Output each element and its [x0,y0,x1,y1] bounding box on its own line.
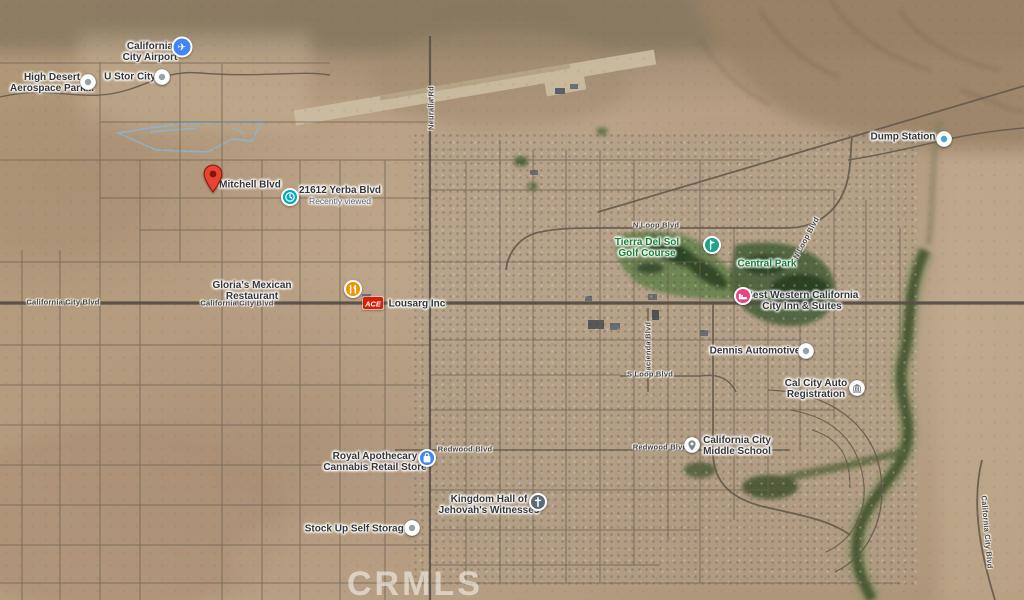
poi-label-royal-apothecary-cannabis[interactable]: Royal Apothecary Cannabis Retail Store [323,451,426,473]
road-label-redwood-blvd-w: Redwood Blvd [438,445,492,454]
road-label-n-loop-blvd-w: N Loop Blvd [633,221,679,230]
poi-label-text-glorias-mexican-restaurant: Gloria's Mexican Restaurant [212,280,291,302]
cannabis-store-marker[interactable] [417,448,437,468]
road-label-california-city-blvd-w: California City Blvd [26,298,99,307]
aerospace-park-marker[interactable] [78,72,98,92]
recently-viewed-marker[interactable] [280,187,300,207]
poi-label-text-dennis-automotive: Dennis Automotive [710,345,801,356]
poi-label-u-stor-city[interactable]: U Stor City [104,71,156,82]
road-label-n-loop-blvd-e: N Loop Blvd [791,215,821,260]
poi-label-yerba-blvd-21612[interactable]: 21612 Yerba BlvdRecently viewed [299,185,381,207]
poi-label-best-western-california-city-inn[interactable]: Best Western California City Inn & Suite… [746,290,859,312]
poi-label-lousarg-inc[interactable]: Lousarg Inc [389,298,446,309]
poi-label-california-city-middle-school[interactable]: California City Middle School [703,435,771,457]
svg-text:ACE: ACE [364,299,382,308]
poi-label-dennis-automotive[interactable]: Dennis Automotive [710,345,801,356]
auto-registration-marker[interactable] [847,378,867,398]
poi-label-text-california-city-airport: California City Airport [123,41,178,63]
road-label-s-loop-blvd: S Loop Blvd [627,370,673,379]
poi-label-text-u-stor-city: U Stor City [104,71,156,82]
poi-label-text-kingdom-hall-jehovahs-witnesses: Kingdom Hall of Jehovah's Witnesses [439,494,540,516]
road-label-hacienda-blvd: Hacienda Blvd [644,322,653,376]
poi-label-text-cal-city-auto-registration: Cal City Auto Registration [785,378,847,400]
road-label-redwood-blvd-e: Redwood Blvd [633,443,687,452]
poi-label-mitchell-blvd[interactable]: Mitchell Blvd [219,179,281,190]
poi-label-text-stock-up-self-storage: Stock Up Self Storage [305,523,409,534]
poi-label-stock-up-self-storage[interactable]: Stock Up Self Storage [305,523,409,534]
poi-sublabel-yerba-blvd-21612: Recently viewed [299,197,381,207]
poi-label-text-dump-station: Dump Station [871,131,936,142]
svg-text:✈: ✈ [178,42,187,54]
poi-label-glorias-mexican-restaurant[interactable]: Gloria's Mexican Restaurant [212,280,291,302]
u-stor-city-marker[interactable] [152,67,172,87]
poi-label-dump-station[interactable]: Dump Station [871,131,936,142]
golf-course-marker[interactable] [702,235,722,255]
subject-property-pin-marker[interactable] [203,164,224,194]
dump-station-marker[interactable] [934,129,954,149]
road-label-california-city-blvd-se: California City Blvd [979,495,994,569]
satellite-map-canvas[interactable]: California City BlvdCalifornia City Blvd… [0,0,1024,600]
poi-label-text-central-park: Central Park [738,258,797,269]
middle-school-marker[interactable] [682,435,702,455]
poi-label-tierra-del-sol-golf-course[interactable]: Tierra Del Sol Golf Course [615,237,679,259]
poi-label-text-lousarg-inc: Lousarg Inc [389,298,446,309]
poi-label-text-best-western-california-city-inn: Best Western California City Inn & Suite… [746,290,859,312]
poi-label-cal-city-auto-registration[interactable]: Cal City Auto Registration [785,378,847,400]
hotel-marker[interactable] [733,286,753,306]
restaurant-marker[interactable] [343,279,363,299]
self-storage-marker[interactable] [402,518,422,538]
dennis-automotive-marker[interactable] [796,341,816,361]
poi-label-central-park[interactable]: Central Park [738,258,797,269]
airport-marker[interactable]: ✈ [171,36,194,59]
poi-label-text-royal-apothecary-cannabis: Royal Apothecary Cannabis Retail Store [323,451,426,473]
crmls-watermark: CRMLS [347,565,483,600]
kingdom-hall-marker[interactable] [528,492,548,512]
poi-label-text-tierra-del-sol-golf-course: Tierra Del Sol Golf Course [615,237,679,259]
map-overlay: California City BlvdCalifornia City Blvd… [0,0,1024,600]
poi-label-california-city-airport[interactable]: California City Airport [123,41,178,63]
poi-label-text-mitchell-blvd: Mitchell Blvd [219,179,281,190]
poi-label-text-california-city-middle-school: California City Middle School [703,435,771,457]
road-label-neuralia-rd: Neuralia Rd [427,86,436,130]
ace-logo-badge[interactable]: ACE [363,297,384,310]
poi-label-kingdom-hall-jehovahs-witnesses[interactable]: Kingdom Hall of Jehovah's Witnesses [439,494,540,516]
poi-label-text-yerba-blvd-21612: 21612 Yerba Blvd [299,185,381,196]
